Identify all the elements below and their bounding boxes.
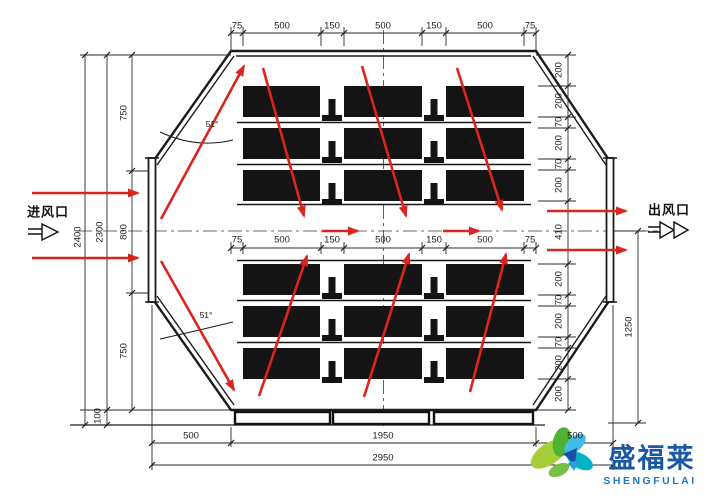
dim-right-u4: 70 — [554, 159, 564, 170]
dim-mid-4: 150 — [426, 235, 442, 245]
dim-top-6: 75 — [525, 21, 536, 31]
dim-bottom-2: 500 — [567, 431, 583, 441]
outlet-label: 出风口 — [648, 200, 690, 219]
dim-right-l5: 200 — [554, 386, 564, 402]
dim-left-750-top: 750 — [119, 105, 129, 121]
dim-top-5: 500 — [477, 21, 493, 31]
dim-mid-0: 75 — [232, 235, 243, 245]
dim-left-2400: 2400 — [73, 226, 83, 247]
dim-top-1: 500 — [274, 21, 290, 31]
dim-right-u1: 200 — [554, 93, 564, 109]
drawing-canvas — [0, 0, 716, 499]
dim-bottom-total: 2950 — [372, 453, 393, 463]
dim-top-4: 150 — [426, 21, 442, 31]
dim-left-750-bottom: 750 — [119, 343, 129, 359]
logo-name: 盛福莱 — [609, 437, 696, 476]
dim-right-l1: 70 — [554, 295, 564, 306]
dim-right-l4: 200 — [554, 355, 564, 371]
inlet-label: 进风口 — [27, 202, 69, 221]
dim-right-l3: 70 — [554, 337, 564, 348]
dim-top-2: 150 — [324, 21, 340, 31]
dim-left-2300: 2300 — [95, 221, 105, 242]
logo-latin: SHENGFULAI — [603, 475, 696, 487]
dim-left-100: 100 — [93, 408, 103, 424]
dim-mid-1: 500 — [274, 235, 290, 245]
dim-left-800: 800 — [119, 224, 129, 240]
dim-right-l0: 200 — [554, 271, 564, 287]
angle-label-lower: 51° — [200, 310, 213, 320]
base-frame — [235, 412, 533, 424]
dim-right-u5: 200 — [554, 177, 564, 193]
dim-top-0: 75 — [232, 21, 243, 31]
dim-right-u3: 200 — [554, 135, 564, 151]
angle-arcs — [160, 132, 233, 339]
dim-mid-2: 150 — [324, 235, 340, 245]
dim-mid-5: 500 — [477, 235, 493, 245]
dim-right-410: 410 — [554, 224, 564, 240]
angle-label-upper: 51° — [206, 119, 219, 129]
dim-right-u0: 200 — [554, 62, 564, 78]
dim-top-3: 500 — [375, 21, 391, 31]
engineering-drawing: 75 500 150 500 150 500 75 75 500 150 500… — [0, 0, 716, 499]
dim-bottom-1: 1950 — [372, 431, 393, 441]
dim-bottom-0: 500 — [183, 431, 199, 441]
dim-mid-6: 75 — [525, 235, 536, 245]
dim-mid-3: 500 — [375, 235, 391, 245]
dim-right-l2: 200 — [554, 313, 564, 329]
inlet-flow-icon — [28, 224, 58, 240]
dim-right-1250: 1250 — [624, 316, 634, 337]
dim-right-u2: 70 — [554, 117, 564, 128]
outlet-flow-icon — [648, 222, 688, 238]
